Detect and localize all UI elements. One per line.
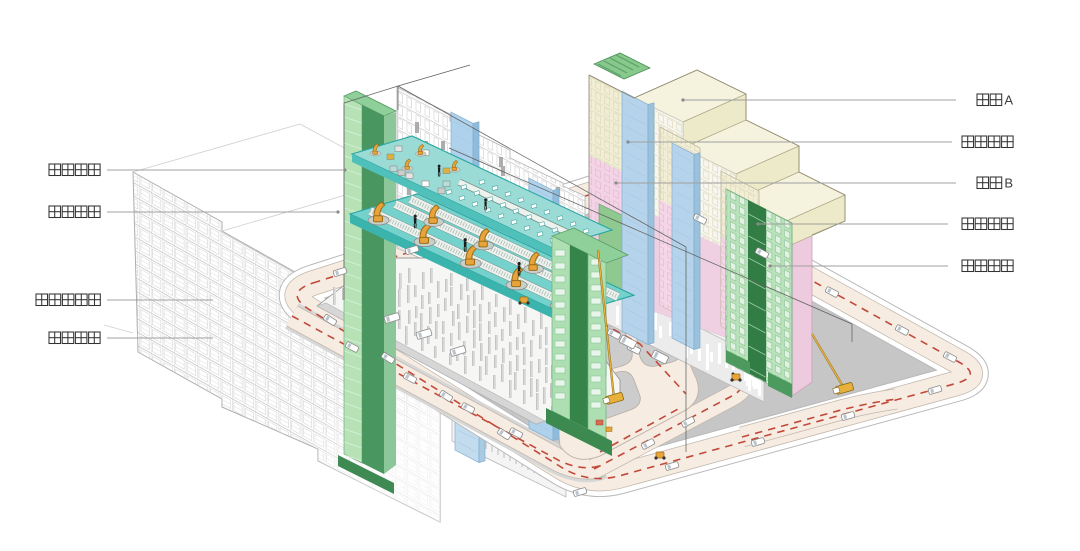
svg-text:A: A <box>1004 93 1013 108</box>
svg-text:B: B <box>1004 176 1013 191</box>
